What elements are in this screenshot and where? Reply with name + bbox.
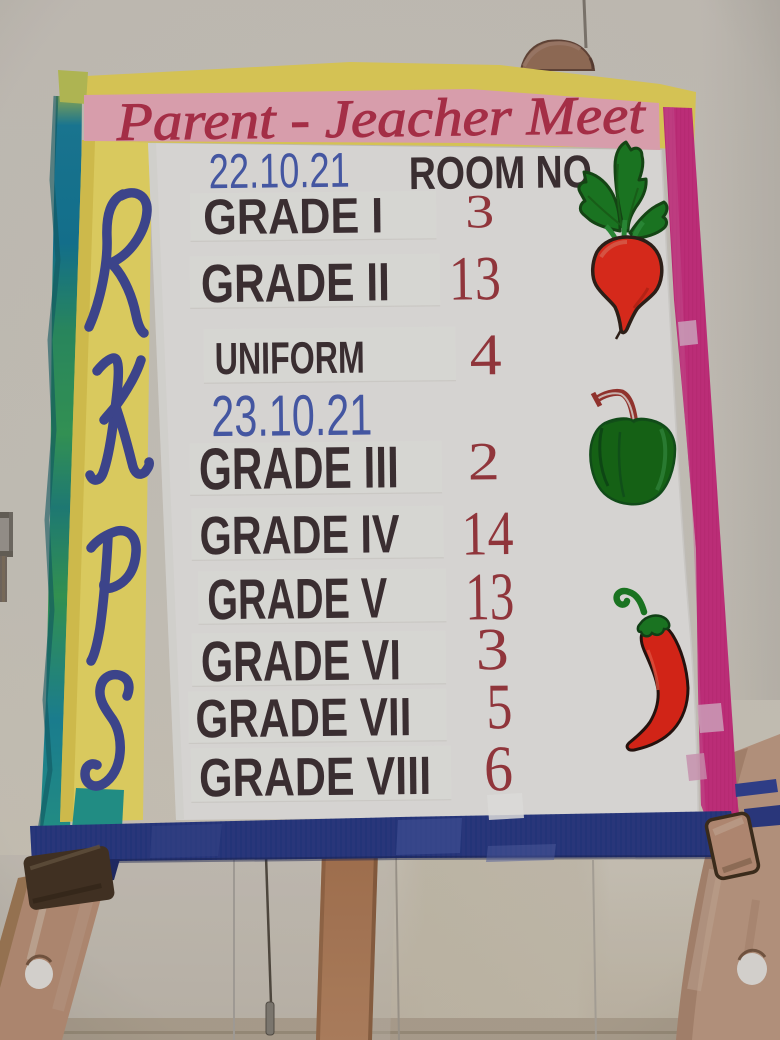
svg-text:UNIFORM: UNIFORM: [214, 332, 365, 385]
svg-text:GRADE VIII: GRADE VIII: [199, 746, 432, 808]
svg-text:13: 13: [449, 243, 502, 314]
svg-text:GRADE V: GRADE V: [207, 566, 388, 632]
svg-text:ROOM NO: ROOM NO: [409, 145, 593, 199]
svg-text:3: 3: [465, 185, 495, 238]
svg-text:2: 2: [467, 431, 500, 491]
svg-text:GRADE II: GRADE II: [201, 252, 391, 314]
svg-text:4: 4: [469, 321, 502, 387]
svg-text:GRADE I: GRADE I: [203, 187, 384, 245]
svg-text:GRADE III: GRADE III: [199, 434, 400, 502]
svg-text:GRADE VII: GRADE VII: [195, 687, 412, 749]
svg-text:Parent - Jeacher Meet: Parent - Jeacher Meet: [115, 85, 647, 152]
svg-text:GRADE IV: GRADE IV: [199, 504, 400, 566]
svg-text:GRADE VI: GRADE VI: [201, 628, 402, 694]
